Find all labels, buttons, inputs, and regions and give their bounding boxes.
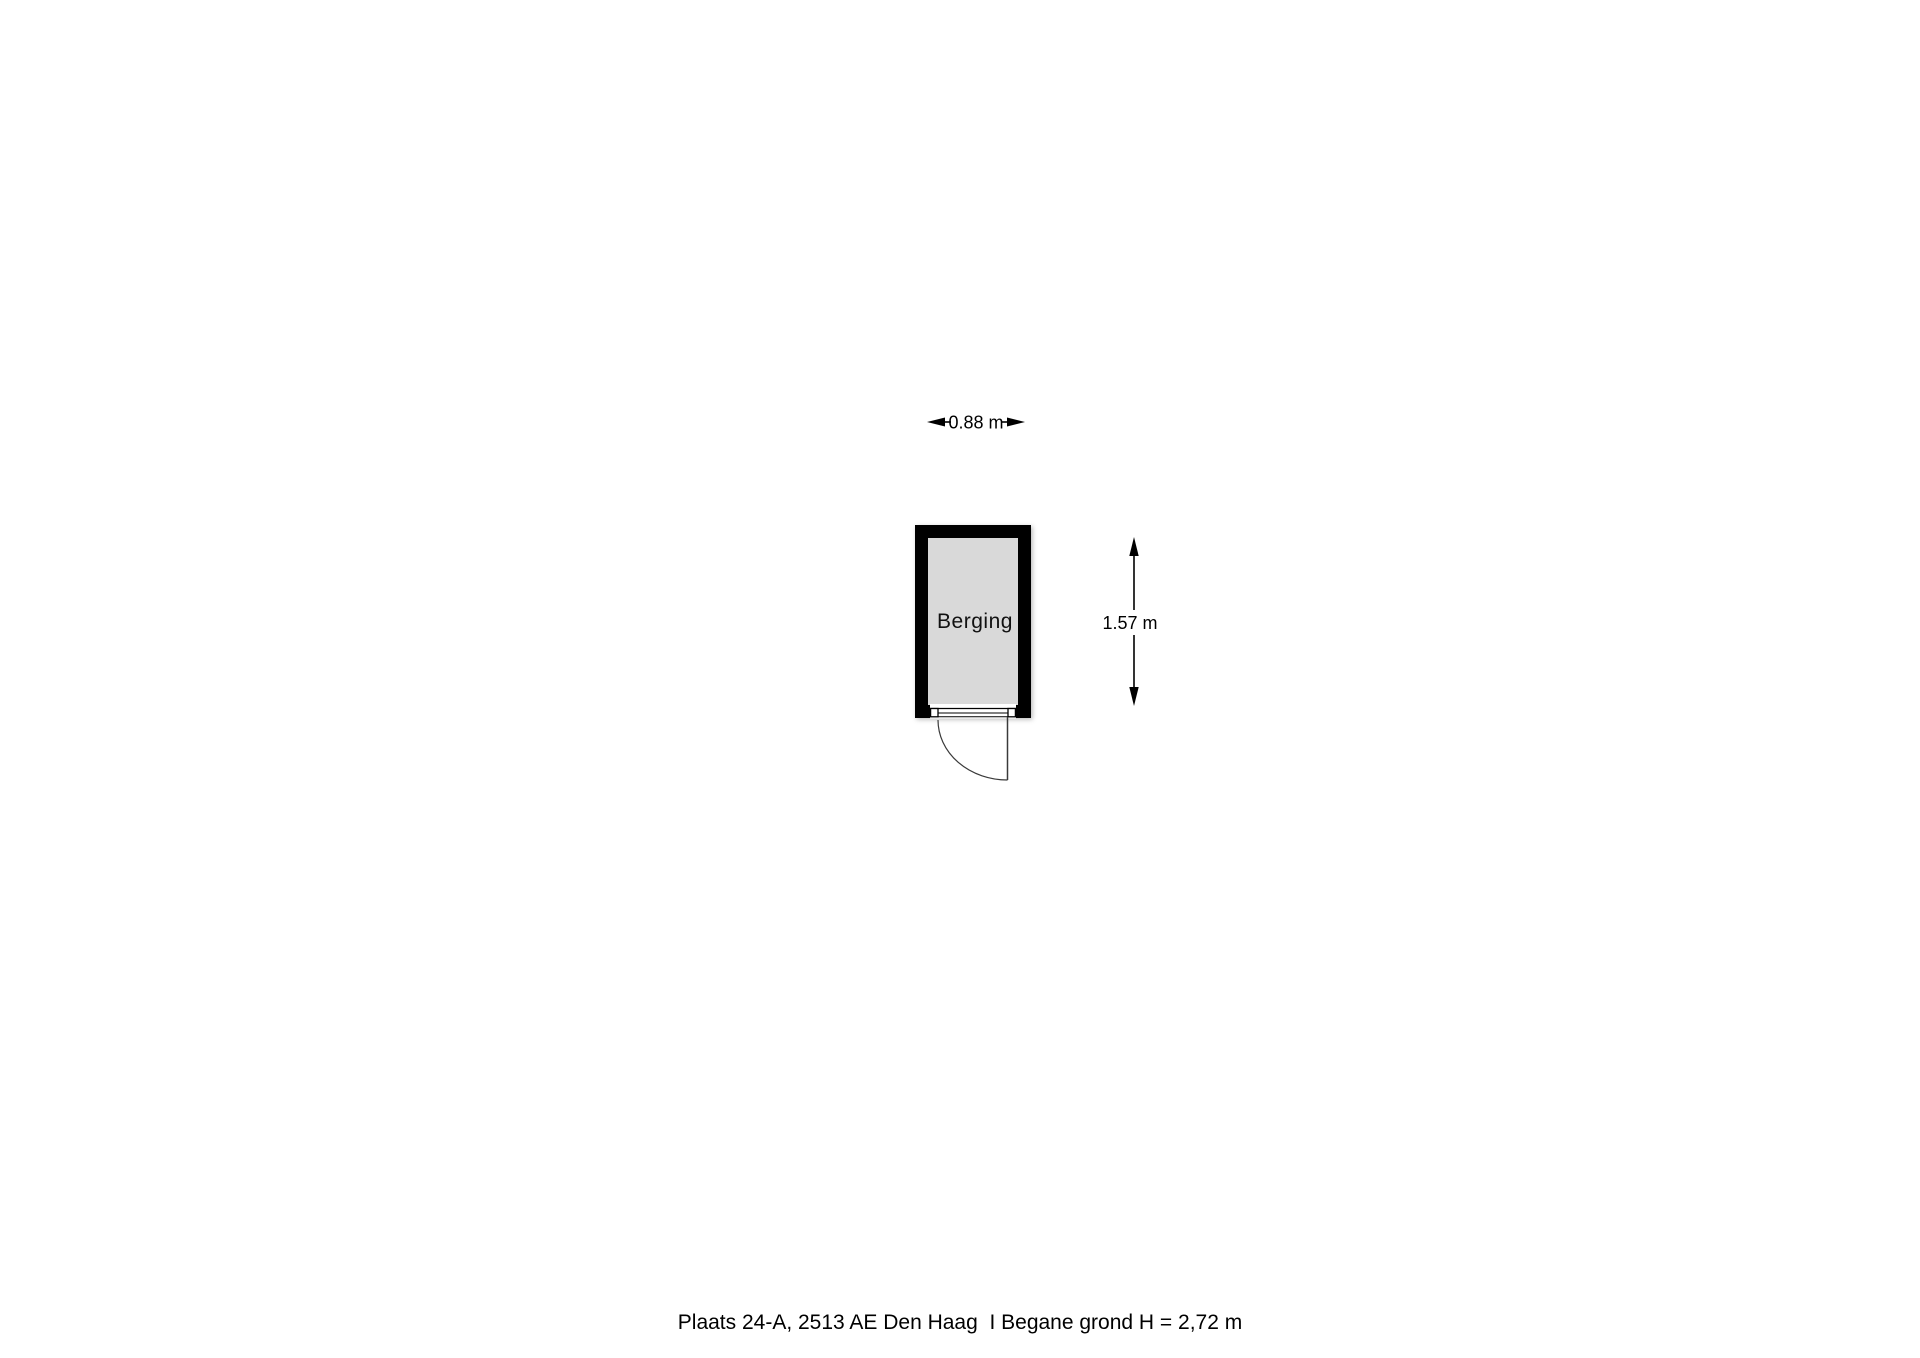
room-name-label: Berging (937, 610, 1013, 633)
width-dim-left-arrow-icon (927, 418, 945, 427)
floorplan-page: 0.88 m 1.57 m Berging Plaats 24-A, 2513 … (0, 0, 1920, 1358)
width-dim-right-arrow-icon (1007, 418, 1025, 427)
width-dimension-label: 0.88 m (948, 413, 1003, 433)
door-jamb-left (931, 709, 938, 717)
height-dimension-label: 1.57 m (1102, 613, 1157, 633)
door-swing-arc (938, 720, 1008, 780)
address-caption: Plaats 24-A, 2513 AE Den Haag I Begane g… (0, 1311, 1920, 1335)
floorplan-drawing: 0.88 m 1.57 m Berging (0, 0, 1920, 1358)
door-jamb-right (1008, 709, 1015, 717)
height-dimension: 1.57 m (1102, 537, 1162, 706)
width-dimension: 0.88 m (927, 413, 1025, 433)
height-dim-up-arrow-icon (1129, 537, 1138, 556)
height-dim-down-arrow-icon (1129, 687, 1138, 706)
